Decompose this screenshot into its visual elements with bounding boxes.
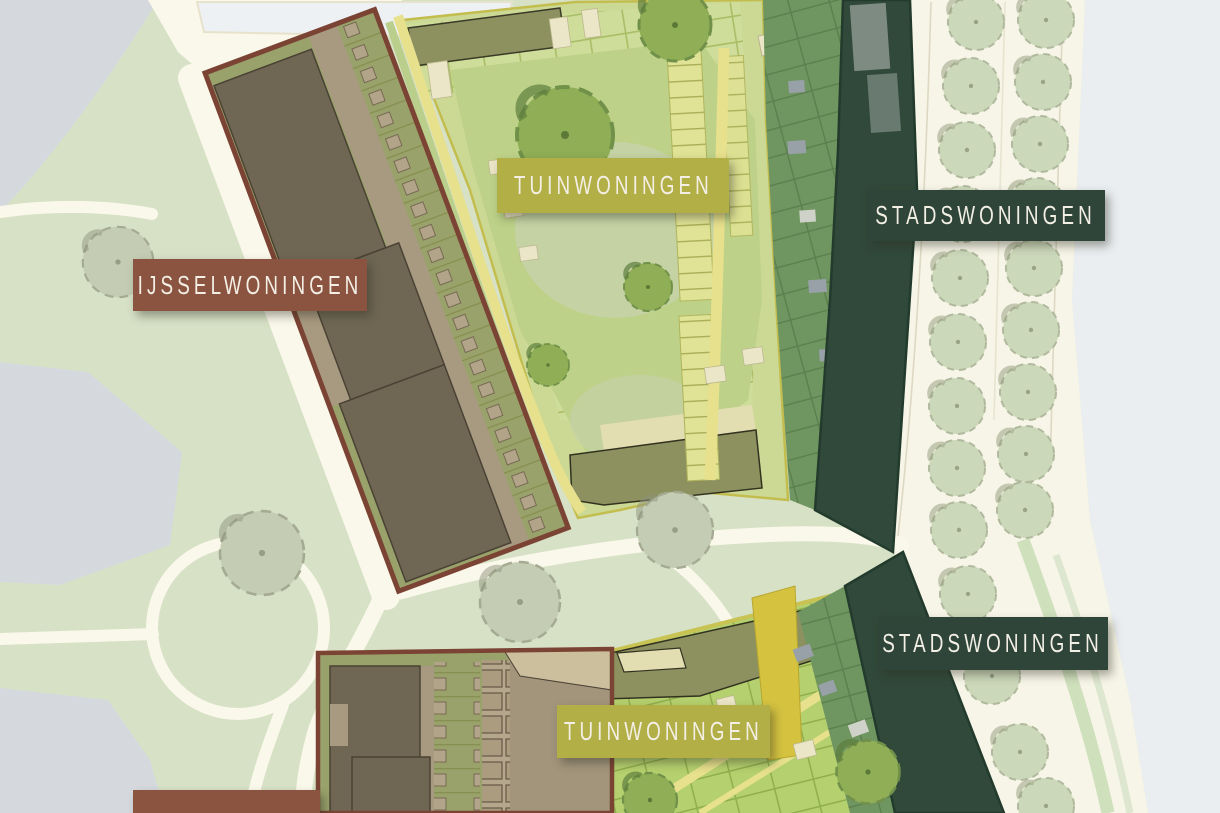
tuinwoningen-label-top-text: TUINWONINGEN bbox=[513, 170, 712, 200]
ijsselwoningen-label-partial[interactable] bbox=[133, 790, 320, 813]
tuin-shed-notch bbox=[617, 648, 686, 672]
site-plan: IJSSELWONINGEN TUINWONINGEN STADSWONINGE… bbox=[0, 0, 1220, 813]
stadswoningen-label-bottom[interactable]: STADSWONINGEN bbox=[878, 617, 1108, 670]
site-plan-map bbox=[0, 0, 1220, 813]
tuinwoningen-label-top[interactable]: TUINWONINGEN bbox=[497, 158, 729, 213]
tuinwoningen-label-bottom-text: TUINWONINGEN bbox=[564, 716, 763, 746]
stadswoningen-label-top-text: STADSWONINGEN bbox=[876, 200, 1097, 230]
ijsselwoningen-label-text: IJSSELWONINGEN bbox=[138, 270, 363, 300]
stadswoningen-label-top[interactable]: STADSWONINGEN bbox=[867, 190, 1105, 241]
ijsselwoningen-label[interactable]: IJSSELWONINGEN bbox=[133, 259, 367, 311]
stadswoningen-label-bottom-text: STADSWONINGEN bbox=[883, 628, 1104, 658]
tuinwoningen-label-bottom[interactable]: TUINWONINGEN bbox=[557, 705, 770, 758]
